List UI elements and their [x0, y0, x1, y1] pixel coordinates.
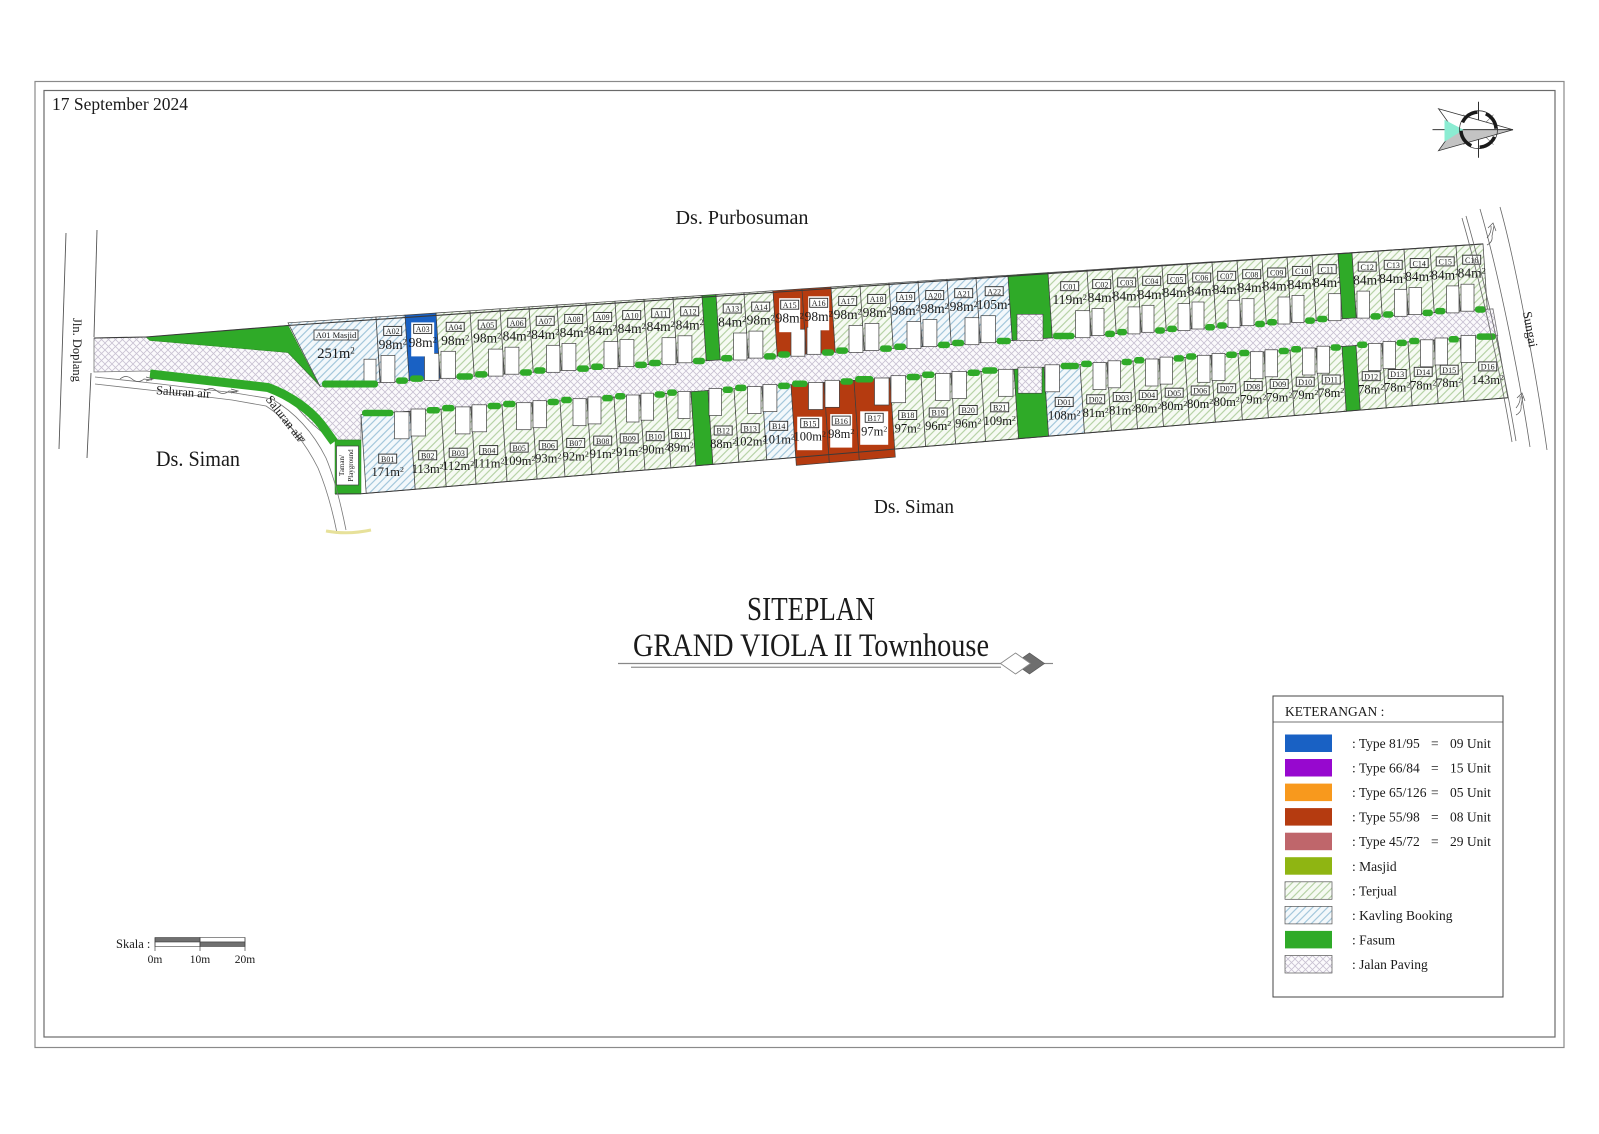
svg-text:B16: B16 — [835, 417, 848, 426]
svg-text:98m2: 98m2 — [409, 335, 437, 350]
svg-text:D16: D16 — [1481, 363, 1495, 372]
svg-text:109m2: 109m2 — [984, 414, 1016, 428]
svg-text:: Terjual: : Terjual — [1352, 883, 1397, 898]
svg-text:: Fasum: : Fasum — [1352, 932, 1396, 947]
svg-text:A13: A13 — [725, 305, 739, 314]
svg-text:84m2: 84m2 — [1353, 273, 1381, 288]
svg-text:A12: A12 — [683, 308, 697, 317]
svg-text:C01: C01 — [1063, 282, 1076, 291]
svg-text:15 Unit: 15 Unit — [1450, 761, 1491, 776]
svg-text:: Type 45/72: : Type 45/72 — [1352, 834, 1420, 849]
svg-text:A01 Masjid: A01 Masjid — [316, 330, 357, 340]
svg-text:A16: A16 — [812, 299, 826, 308]
svg-text:20m: 20m — [235, 954, 256, 966]
svg-text:C14: C14 — [1413, 259, 1426, 268]
svg-text:10m: 10m — [190, 954, 211, 966]
svg-text:A06: A06 — [510, 319, 524, 328]
svg-text:109m2: 109m2 — [503, 454, 535, 468]
svg-text:A19: A19 — [899, 293, 913, 302]
svg-text:84m2: 84m2 — [647, 319, 675, 334]
svg-text:17 September 2024: 17 September 2024 — [52, 94, 188, 114]
svg-text:84m2: 84m2 — [1163, 285, 1191, 300]
svg-text:84m2: 84m2 — [1379, 271, 1407, 286]
svg-text:D08: D08 — [1246, 382, 1260, 391]
svg-text:05 Unit: 05 Unit — [1450, 785, 1491, 800]
svg-text:C04: C04 — [1145, 277, 1158, 286]
svg-text:: Type 81/95: : Type 81/95 — [1352, 736, 1420, 751]
svg-text:A17: A17 — [841, 297, 855, 306]
svg-text:B11: B11 — [674, 430, 687, 439]
svg-text:29 Unit: 29 Unit — [1450, 834, 1491, 849]
svg-text:B18: B18 — [901, 411, 914, 420]
svg-text:D03: D03 — [1115, 393, 1129, 402]
svg-text:98m2: 98m2 — [950, 299, 978, 314]
svg-text:A22: A22 — [987, 287, 1001, 296]
svg-text:84m2: 84m2 — [1431, 267, 1459, 282]
svg-text:C09: C09 — [1270, 269, 1283, 278]
svg-text:B01: B01 — [381, 455, 394, 464]
svg-text:B03: B03 — [452, 449, 465, 458]
svg-text:84m2: 84m2 — [1238, 280, 1266, 295]
svg-text:C13: C13 — [1387, 261, 1400, 270]
svg-text:A15: A15 — [783, 301, 797, 310]
svg-text:111m2: 111m2 — [473, 457, 505, 471]
svg-text:=: = — [1431, 810, 1439, 825]
svg-text:: Type 55/98: : Type 55/98 — [1352, 810, 1420, 825]
svg-text:C12: C12 — [1361, 263, 1374, 272]
svg-text:B04: B04 — [482, 446, 495, 455]
svg-text:A08: A08 — [567, 315, 581, 324]
svg-text:B14: B14 — [772, 422, 785, 431]
svg-text:98m2: 98m2 — [863, 305, 891, 320]
svg-text:84m2: 84m2 — [1188, 284, 1216, 299]
svg-text:98m2: 98m2 — [921, 301, 949, 316]
svg-text:251m2: 251m2 — [317, 346, 355, 363]
svg-text:A10: A10 — [625, 311, 639, 320]
svg-text:A07: A07 — [538, 317, 552, 326]
svg-text:D07: D07 — [1220, 385, 1234, 394]
svg-text:98m2: 98m2 — [892, 303, 920, 318]
svg-text:100m2: 100m2 — [794, 430, 826, 444]
svg-text:84m2: 84m2 — [718, 315, 746, 330]
svg-text:B05: B05 — [513, 444, 526, 453]
svg-text:C06: C06 — [1195, 274, 1208, 283]
svg-text:A05: A05 — [480, 321, 494, 330]
svg-text:B10: B10 — [649, 432, 662, 441]
svg-text:Playground: Playground — [347, 449, 355, 482]
svg-text:98m2: 98m2 — [834, 307, 862, 322]
svg-text:Ds. Purbosuman: Ds. Purbosuman — [676, 207, 809, 229]
svg-text:171m2: 171m2 — [372, 465, 404, 479]
svg-text:B06: B06 — [542, 441, 555, 450]
svg-text:113m2: 113m2 — [412, 462, 444, 476]
svg-text:84m2: 84m2 — [531, 327, 559, 342]
svg-text:143m2: 143m2 — [1472, 373, 1504, 387]
svg-text:=: = — [1431, 736, 1439, 751]
svg-text:08 Unit: 08 Unit — [1450, 810, 1491, 825]
svg-text:D05: D05 — [1167, 389, 1181, 398]
svg-text:B19: B19 — [932, 409, 945, 418]
svg-text:C11: C11 — [1321, 265, 1334, 274]
svg-text:84m2: 84m2 — [1088, 290, 1116, 305]
svg-text:D12: D12 — [1364, 372, 1378, 381]
svg-text:Jln. Doplang: Jln. Doplang — [70, 318, 84, 383]
svg-text:B13: B13 — [744, 424, 757, 433]
svg-text:C07: C07 — [1220, 272, 1233, 281]
svg-text:84m2: 84m2 — [1213, 282, 1241, 297]
svg-text:B15: B15 — [803, 419, 816, 428]
svg-text:09 Unit: 09 Unit — [1450, 736, 1491, 751]
svg-text:84m2: 84m2 — [589, 323, 617, 338]
svg-text:D13: D13 — [1390, 370, 1404, 379]
svg-text:B08: B08 — [596, 437, 609, 446]
svg-text:D02: D02 — [1089, 396, 1103, 405]
svg-text:84m2: 84m2 — [1405, 269, 1433, 284]
svg-text:A04: A04 — [448, 323, 462, 332]
svg-text:84m2: 84m2 — [1288, 277, 1316, 292]
svg-text:B17: B17 — [868, 414, 881, 423]
svg-text:98m2: 98m2 — [747, 313, 775, 328]
svg-text:84m2: 84m2 — [560, 325, 588, 340]
svg-text:C16: C16 — [1465, 256, 1478, 265]
svg-text:84m2: 84m2 — [618, 321, 646, 336]
svg-text:D10: D10 — [1298, 378, 1312, 387]
svg-text:: Type 66/84: : Type 66/84 — [1352, 761, 1420, 776]
svg-text:D04: D04 — [1141, 391, 1155, 400]
svg-text:C15: C15 — [1439, 258, 1452, 267]
svg-text:D01: D01 — [1057, 398, 1071, 407]
svg-text:B02: B02 — [421, 452, 434, 461]
svg-text:0m: 0m — [148, 954, 163, 966]
svg-text:A21: A21 — [957, 289, 971, 298]
svg-text:A02: A02 — [386, 327, 400, 336]
svg-text:A18: A18 — [870, 295, 884, 304]
svg-text:D15: D15 — [1442, 366, 1456, 375]
svg-text:105m2: 105m2 — [977, 297, 1012, 312]
svg-text:B21: B21 — [993, 404, 1006, 413]
svg-text:98m2: 98m2 — [776, 311, 804, 326]
svg-text:B07: B07 — [569, 439, 582, 448]
svg-text:D11: D11 — [1324, 376, 1337, 385]
svg-text:Ds. Siman: Ds. Siman — [156, 446, 240, 471]
svg-text:Skala :: Skala : — [116, 937, 150, 951]
svg-text:98m2: 98m2 — [379, 337, 407, 352]
svg-text:112m2: 112m2 — [442, 459, 474, 473]
svg-text:KETERANGAN :: KETERANGAN : — [1285, 704, 1384, 719]
svg-text:Ds. Siman: Ds. Siman — [874, 496, 954, 518]
svg-text:C08: C08 — [1245, 270, 1258, 279]
svg-text:: Kavling Booking: : Kavling Booking — [1352, 908, 1453, 923]
svg-text:101m2: 101m2 — [763, 432, 795, 446]
svg-text:D14: D14 — [1416, 368, 1430, 377]
svg-text:C05: C05 — [1170, 275, 1183, 284]
svg-text:B12: B12 — [717, 427, 730, 436]
svg-text:=: = — [1431, 761, 1439, 776]
svg-text:=: = — [1431, 785, 1439, 800]
svg-text:GRAND VIOLA II Townhouse: GRAND VIOLA II Townhouse — [633, 628, 989, 664]
svg-text:98m2: 98m2 — [441, 333, 469, 348]
svg-text:A03: A03 — [416, 325, 430, 334]
svg-text:D09: D09 — [1272, 380, 1286, 389]
svg-text:B09: B09 — [623, 435, 636, 444]
svg-text:A14: A14 — [754, 303, 768, 312]
svg-text:: Jalan Paving: : Jalan Paving — [1352, 957, 1428, 972]
svg-text:: Type 65/126: : Type 65/126 — [1352, 785, 1427, 800]
svg-text:84m2: 84m2 — [676, 317, 704, 332]
svg-text:: Masjid: : Masjid — [1352, 859, 1397, 874]
svg-text:A11: A11 — [654, 309, 667, 318]
svg-text:98m2: 98m2 — [473, 331, 501, 346]
svg-text:84m2: 84m2 — [1113, 288, 1141, 303]
svg-text:C03: C03 — [1120, 279, 1133, 288]
svg-text:C02: C02 — [1095, 280, 1108, 289]
svg-text:A20: A20 — [928, 291, 942, 300]
svg-text:108m2: 108m2 — [1048, 408, 1080, 422]
svg-text:84m2: 84m2 — [1313, 275, 1341, 290]
svg-text:=: = — [1431, 834, 1439, 849]
svg-text:84m2: 84m2 — [1138, 287, 1166, 302]
svg-text:C10: C10 — [1295, 267, 1308, 276]
svg-text:119m2: 119m2 — [1052, 292, 1086, 307]
svg-text:Taman/: Taman/ — [338, 455, 346, 476]
svg-text:84m2: 84m2 — [503, 329, 531, 344]
svg-text:84m2: 84m2 — [1263, 279, 1291, 294]
svg-text:A09: A09 — [596, 313, 610, 322]
svg-text:D06: D06 — [1193, 387, 1207, 396]
svg-text:B20: B20 — [962, 406, 975, 415]
svg-text:SITEPLAN: SITEPLAN — [747, 591, 875, 628]
svg-text:98m2: 98m2 — [805, 309, 833, 324]
